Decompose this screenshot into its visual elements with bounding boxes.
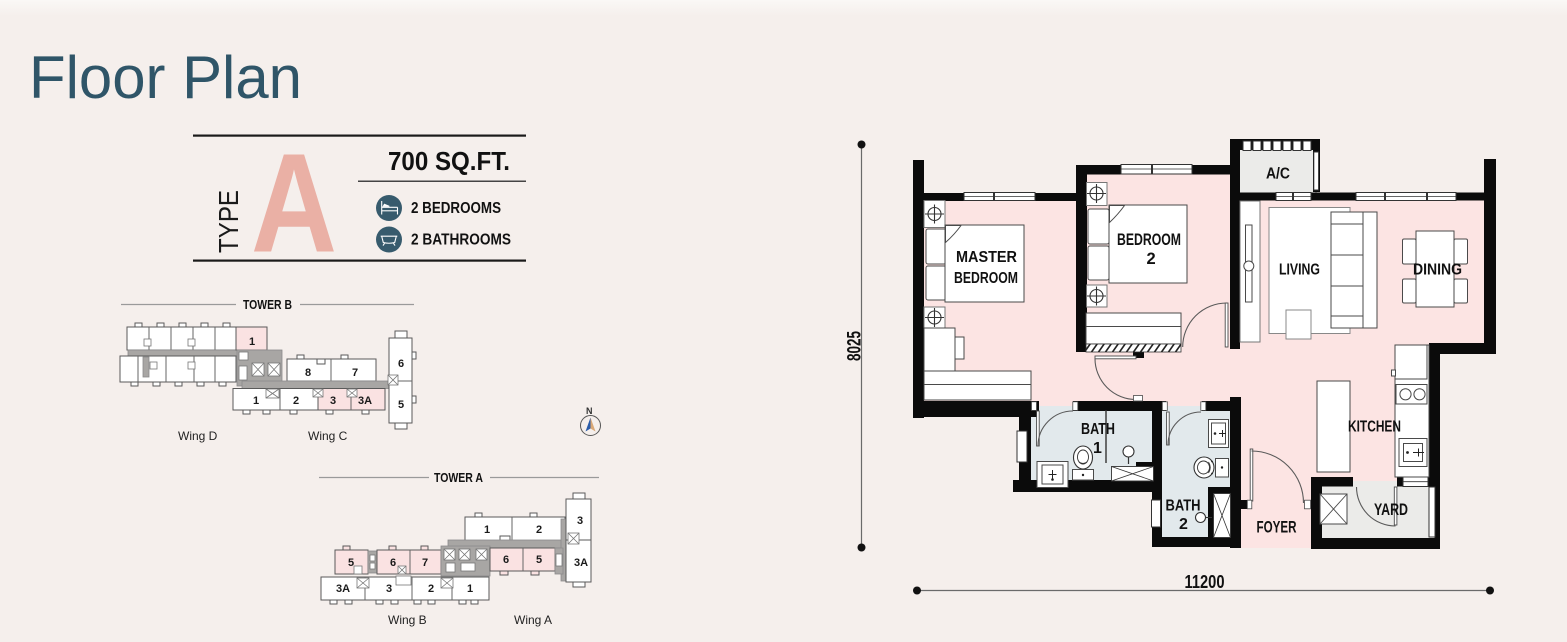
svg-text:2 BEDROOMS: 2 BEDROOMS — [411, 200, 501, 217]
svg-text:A: A — [251, 124, 337, 282]
svg-text:Wing D: Wing D — [178, 429, 218, 443]
svg-text:3A: 3A — [336, 583, 350, 595]
svg-text:700 SQ.FT.: 700 SQ.FT. — [388, 146, 510, 176]
svg-text:2: 2 — [293, 395, 299, 407]
svg-text:11200: 11200 — [1185, 571, 1225, 592]
svg-text:1: 1 — [484, 524, 490, 536]
svg-text:2: 2 — [1147, 250, 1156, 268]
svg-text:Floor Plan: Floor Plan — [29, 44, 302, 111]
svg-text:5: 5 — [398, 399, 404, 411]
svg-text:7: 7 — [422, 557, 428, 569]
svg-text:6: 6 — [503, 554, 509, 566]
svg-text:Wing B: Wing B — [388, 613, 427, 627]
svg-text:7: 7 — [352, 367, 358, 379]
svg-text:2: 2 — [1179, 516, 1188, 533]
svg-text:8: 8 — [305, 367, 311, 379]
svg-text:3: 3 — [330, 395, 336, 407]
svg-text:BATH: BATH — [1081, 421, 1115, 438]
svg-text:N: N — [586, 406, 593, 416]
svg-text:5: 5 — [536, 554, 542, 566]
svg-text:MASTER: MASTER — [956, 249, 1017, 266]
svg-text:TYPE: TYPE — [213, 190, 244, 253]
svg-text:A/C: A/C — [1266, 166, 1290, 183]
svg-text:KITCHEN: KITCHEN — [1348, 419, 1401, 436]
svg-text:DINING: DINING — [1413, 262, 1462, 279]
svg-text:BEDROOM: BEDROOM — [954, 270, 1018, 287]
svg-text:3A: 3A — [574, 557, 588, 569]
svg-text:Wing C: Wing C — [308, 429, 348, 443]
svg-text:YARD: YARD — [1374, 501, 1408, 519]
svg-text:LIVING: LIVING — [1279, 262, 1320, 279]
svg-text:1: 1 — [1093, 440, 1102, 457]
svg-text:TOWER A: TOWER A — [434, 470, 483, 485]
svg-text:2 BATHROOMS: 2 BATHROOMS — [411, 232, 511, 249]
svg-text:6: 6 — [398, 358, 404, 370]
svg-text:1: 1 — [253, 395, 259, 407]
svg-text:Wing A: Wing A — [514, 613, 552, 627]
svg-text:2: 2 — [536, 524, 542, 536]
svg-text:8025: 8025 — [844, 331, 866, 361]
svg-text:1: 1 — [249, 336, 255, 348]
svg-text:6: 6 — [390, 557, 396, 569]
svg-text:3: 3 — [386, 583, 392, 595]
svg-text:BEDROOM: BEDROOM — [1117, 231, 1181, 249]
svg-text:2: 2 — [428, 583, 434, 595]
svg-text:FOYER: FOYER — [1257, 519, 1297, 537]
svg-text:1: 1 — [467, 583, 473, 595]
svg-text:3: 3 — [577, 515, 583, 527]
svg-text:3A: 3A — [358, 395, 372, 407]
svg-text:TOWER B: TOWER B — [243, 297, 292, 312]
svg-text:5: 5 — [348, 557, 354, 569]
svg-text:BATH: BATH — [1166, 498, 1201, 515]
